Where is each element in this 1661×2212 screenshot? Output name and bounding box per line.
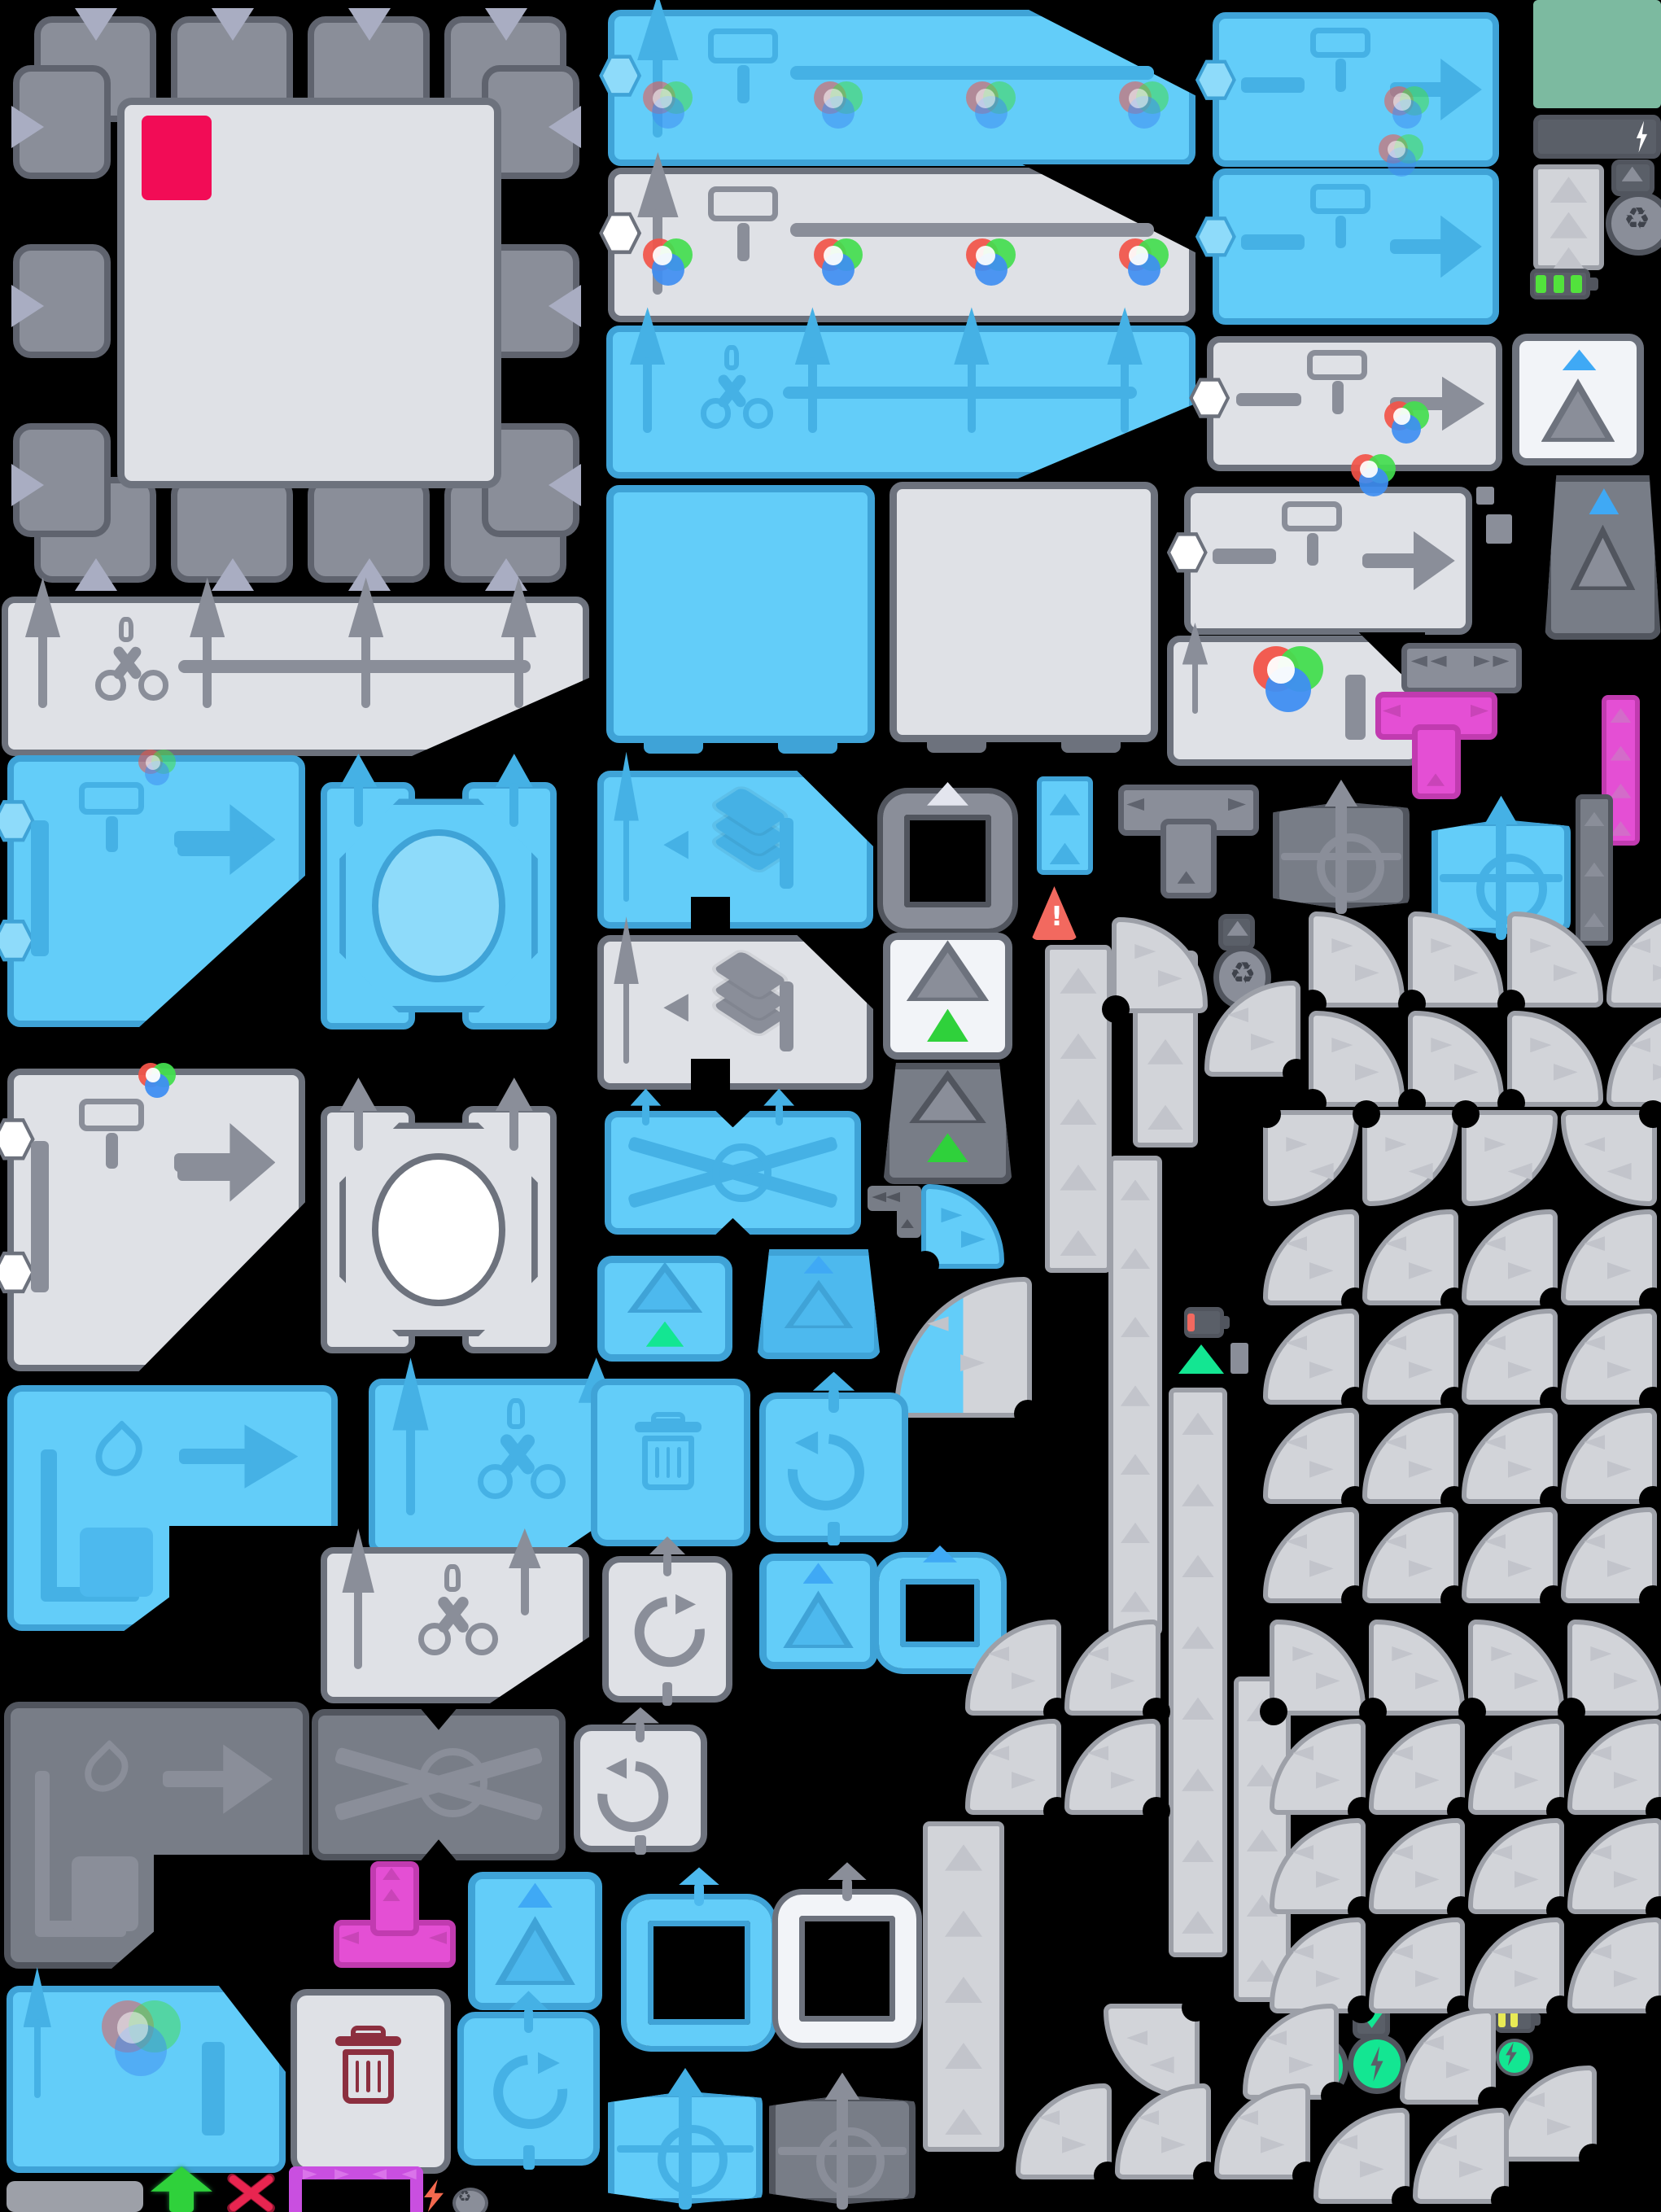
pipe-line [31, 820, 49, 956]
power-capacity-bar[interactable] [1533, 115, 1661, 159]
belt-curve-tl[interactable] [1263, 1507, 1359, 1603]
frame-body [627, 1899, 771, 2046]
scissors-icon [470, 1397, 562, 1488]
arrow-head [1414, 531, 1455, 591]
arrow-up-icon [190, 577, 225, 708]
magenta-tee-up[interactable] [334, 1861, 456, 1968]
curve-notch [1639, 1585, 1661, 1613]
frame-arrow [828, 1862, 867, 1901]
arrow-head [824, 2073, 859, 2101]
arrow-right-icon [1362, 531, 1454, 591]
core-ellipse [372, 829, 505, 982]
unlock-pad-white[interactable] [883, 933, 1012, 1060]
pipe-line [780, 981, 793, 1051]
notch-triangle [923, 1545, 957, 1563]
pin-bar [778, 2147, 907, 2154]
belt-curve-tr[interactable] [1369, 1620, 1465, 1716]
curve-body [1567, 1719, 1661, 1815]
deco-square-a[interactable] [1476, 487, 1494, 505]
arrow-up-icon [614, 752, 639, 902]
pipe-line [1213, 549, 1276, 563]
pin-stem [635, 1835, 645, 1856]
arrow-right-icon [163, 1744, 273, 1813]
belt-curve-tl[interactable] [1561, 1408, 1657, 1504]
recycle-small[interactable]: ♻ [452, 2188, 482, 2212]
scissors-icon [412, 1563, 493, 1644]
launcher-pad-white[interactable] [1512, 334, 1644, 466]
plate-body [606, 485, 875, 743]
plate-foot [778, 741, 837, 754]
belt-curve-tl[interactable] [1462, 1209, 1558, 1305]
painter-right-blue-1[interactable] [1213, 12, 1499, 167]
arrow-stem [509, 1107, 518, 1151]
roller-head [1307, 350, 1367, 380]
red-x[interactable] [221, 2173, 282, 2212]
stacker-gray[interactable] [597, 935, 873, 1090]
arrow-stem [1362, 553, 1418, 567]
belt-curve-tl[interactable] [1263, 1209, 1359, 1305]
belt-curve-tl[interactable] [1270, 1719, 1366, 1815]
arrow-up-icon [630, 307, 665, 432]
rgb-center [824, 89, 843, 108]
belt-curve-tl[interactable] [1362, 1408, 1458, 1504]
arrow-up-icon [813, 1372, 855, 1413]
cross-ring [418, 1748, 487, 1817]
arrow-stem [642, 1104, 649, 1126]
curve-notch [1353, 1100, 1380, 1128]
green-arrow-up[interactable] [151, 2166, 212, 2212]
arrow-stem [623, 811, 629, 902]
belt-curve-blue[interactable] [921, 1184, 1004, 1269]
arrow-up-icon [496, 1078, 533, 1151]
foot-block [80, 1528, 152, 1597]
dark-hopper-trapezoid[interactable] [1545, 475, 1661, 640]
warning-sign[interactable]: ! [1031, 886, 1077, 940]
trash-blue[interactable] [591, 1379, 750, 1546]
rgb-center [1388, 141, 1405, 159]
core-ellipse [372, 1153, 505, 1306]
color-square [1486, 514, 1512, 544]
scissor-ring [138, 670, 168, 700]
triangle-icon [630, 307, 665, 365]
l-cut [169, 1526, 341, 1634]
arrow-up-icon [509, 1991, 549, 2033]
splitter-bar-gray[interactable] [1401, 643, 1522, 693]
rotator-cw-blue[interactable] [457, 1998, 600, 2173]
pipe-line [178, 660, 531, 673]
arrow-stem [354, 783, 363, 827]
belt-curve-tr[interactable] [1309, 1011, 1405, 1107]
arrow-stem [163, 1771, 229, 1787]
foot-block [72, 1856, 139, 1931]
pipe-line [783, 387, 1136, 399]
pin-stem [662, 1682, 673, 1706]
pin-ring [1317, 833, 1384, 901]
belt-curve-tl[interactable] [1369, 1719, 1465, 1815]
platform-foundation[interactable] [11, 8, 581, 591]
arrow-up-icon [763, 1089, 794, 1126]
rotator-ccw-blue[interactable] [759, 1379, 908, 1549]
bar-body [1401, 643, 1522, 693]
belt-curve-tr[interactable] [1112, 917, 1208, 1013]
curve-notch [1321, 2082, 1348, 2109]
arrow-stem [828, 1388, 838, 1413]
blade-tip [119, 617, 133, 642]
medal-circle [1348, 2034, 1406, 2094]
trash-white[interactable] [291, 1989, 451, 2174]
tunnel-frame-gray[interactable] [883, 782, 1012, 929]
pin-pusher-gray[interactable] [769, 2087, 916, 2212]
arrow-up-icon [614, 916, 639, 1064]
painter-right-gray-1[interactable] [1207, 336, 1502, 471]
belt-curve-tl[interactable] [1462, 1507, 1558, 1603]
rotator-ccw-gray[interactable] [574, 1713, 707, 1858]
rotate-cw-icon [631, 1593, 698, 1660]
plate-foot [927, 739, 986, 753]
arrow-right-icon [1390, 216, 1482, 278]
trash-stripe [677, 1447, 680, 1479]
belt-curve-tl[interactable] [1462, 1408, 1558, 1504]
arrow-stem [636, 1721, 645, 1742]
belt-curve-tl[interactable] [1462, 1309, 1558, 1405]
crossover-blue[interactable] [605, 1111, 861, 1235]
battery-bar [1498, 2012, 1506, 2028]
battery-red[interactable] [1184, 1307, 1230, 1338]
gray-plate-square[interactable] [890, 482, 1158, 753]
hex-inner [1199, 63, 1232, 98]
arrow-up-icon [339, 754, 377, 827]
pin-pusher-dark[interactable] [1273, 794, 1410, 916]
arrow-up-icon [24, 1967, 51, 2098]
white-frame-arrow[interactable] [778, 1882, 916, 2043]
belt-curve-tl[interactable] [1468, 1719, 1564, 1815]
arrow-stem [521, 1563, 529, 1616]
arrow-stem [842, 1878, 851, 1901]
triangle-icon [24, 1967, 51, 2027]
rotator-cw-gray[interactable] [602, 1543, 732, 1709]
quad-painter-gray[interactable] [608, 168, 1195, 322]
pin-stem [828, 1522, 840, 1545]
hex-inner [0, 802, 31, 839]
octagon-processor-blue[interactable] [321, 759, 557, 1041]
tee-balancer-gray[interactable] [1118, 785, 1259, 898]
belt-curve-tl[interactable] [1064, 1620, 1161, 1716]
triangle-icon [501, 577, 536, 637]
pin-stem [523, 2145, 535, 2170]
hex-inner [0, 1254, 31, 1291]
belt-curve-tl[interactable] [1468, 1818, 1564, 1914]
trash-stripe [356, 2061, 359, 2092]
arrow-head [1440, 59, 1482, 120]
roller-handle [737, 223, 750, 261]
belt-curve-tl[interactable] [1016, 2083, 1112, 2179]
belt-curve-tl[interactable] [1369, 1917, 1465, 2013]
belt-curve-tl[interactable] [965, 1719, 1061, 1815]
curve-notch [1143, 1797, 1170, 1825]
painter-left-blue[interactable] [7, 755, 305, 1027]
recycle-medal-top[interactable]: ♻ [1605, 160, 1661, 247]
curve-body [1507, 911, 1603, 1008]
belt-curve-tl[interactable] [1567, 1719, 1661, 1815]
curve-notch [1491, 2186, 1519, 2212]
blue-frame-arrow[interactable] [627, 1886, 771, 2046]
cutter-quad-blue[interactable] [606, 326, 1195, 479]
arrow-stem [524, 2008, 534, 2033]
belt-curve-br[interactable] [1362, 1110, 1458, 1206]
arrow-stem [38, 630, 46, 708]
pin-pusher-blue-2[interactable] [608, 2083, 763, 2212]
pipe-line [1236, 393, 1301, 407]
green-material-square[interactable] [1533, 0, 1661, 108]
battery-nub [1535, 2013, 1541, 2026]
belt-curve-tl[interactable] [1270, 1917, 1366, 2013]
scissor-ring [701, 398, 731, 428]
belt-curve-tl[interactable] [1501, 2066, 1597, 2162]
arrow-up-icon [25, 577, 60, 708]
roller-handle [1335, 59, 1346, 92]
pad-blue-triangles-c[interactable] [468, 1872, 602, 2010]
curve-body [1270, 1620, 1366, 1716]
roller-handle [106, 1133, 117, 1169]
pad-blue-triangles-b[interactable] [759, 1554, 877, 1669]
belt-curve-tr[interactable] [1507, 911, 1603, 1008]
arrow-bar [177, 837, 255, 855]
arrow-stem [776, 1104, 783, 1126]
arrow-stem [623, 975, 629, 1063]
scissor-ring [531, 1464, 566, 1499]
triangle-icon [342, 1528, 374, 1593]
trash-icon [632, 1412, 704, 1494]
sprite-atlas: ♻!♻♻ [0, 0, 1661, 2212]
roller-handle [1307, 533, 1318, 566]
belt-curve-tr[interactable] [1567, 1620, 1661, 1716]
rgb-center [1267, 656, 1295, 684]
belt-curve-tl[interactable] [1369, 1818, 1465, 1914]
belt-curve-tl[interactable] [965, 1620, 1061, 1716]
belt-curve-tl[interactable] [1362, 1507, 1458, 1603]
strip-b[interactable] [1045, 945, 1112, 1273]
belt-curve-half[interactable] [894, 1277, 1032, 1418]
octagon-processor-gray[interactable] [321, 1083, 557, 1365]
pipe-line [1241, 234, 1304, 250]
pipe-line [780, 818, 793, 889]
frame-body [883, 793, 1012, 929]
triangle-icon [392, 1357, 428, 1430]
belt-curve-tr[interactable] [1270, 1620, 1366, 1716]
painter-right-blue-2[interactable] [1213, 168, 1499, 325]
arrow-head [223, 1744, 273, 1813]
octagon-core [339, 1122, 538, 1336]
painter-left-gray[interactable] [7, 1069, 305, 1371]
belt-curve-tl[interactable] [1115, 2083, 1211, 2179]
layers-icon [713, 793, 786, 866]
curve-body [1606, 1011, 1661, 1107]
belt-curve-tl[interactable] [1561, 1507, 1657, 1603]
pad-blue-triangles-a[interactable] [597, 1256, 732, 1362]
green-triangle[interactable] [1178, 1344, 1224, 1374]
frame-body [778, 1895, 916, 2043]
belt-curve-tl[interactable] [1362, 1209, 1458, 1305]
arrow-up-icon [392, 1357, 428, 1515]
blue-plate-square[interactable] [606, 485, 875, 754]
belt-curve-tl[interactable] [1413, 2108, 1509, 2204]
belt-curve-tl[interactable] [1263, 1309, 1359, 1405]
belt-body [1169, 1388, 1227, 1957]
belt-curve-tr[interactable] [1408, 911, 1504, 1008]
arrow-head [1484, 796, 1518, 824]
belt-curve-tr[interactable] [1507, 1011, 1603, 1107]
cutter-half-gray[interactable] [321, 1547, 589, 1703]
belt-strip-top[interactable] [1533, 164, 1604, 270]
belt-curve-bl[interactable] [1561, 1110, 1657, 1206]
battery-nub [1590, 278, 1598, 291]
droplet-icon [94, 1419, 146, 1483]
belt-curve-tl[interactable] [1567, 1917, 1661, 2013]
trash-body [343, 2049, 395, 2104]
rgb-center [1393, 93, 1411, 111]
recycle-symbol: ♻ [1624, 204, 1650, 234]
curve-body [1369, 1620, 1465, 1716]
notch-cut [691, 897, 729, 932]
curve-body [1408, 1011, 1504, 1107]
belt-strip-wide[interactable] [923, 1821, 1004, 2152]
roller-head [708, 186, 778, 221]
belt-curve-tl[interactable] [1561, 1309, 1657, 1405]
rgb-center [1360, 461, 1378, 479]
pin-bar [617, 2145, 753, 2153]
dark-hopper-square[interactable] [883, 1063, 1012, 1184]
stacker-blue[interactable] [597, 771, 873, 929]
triangle-icon [1107, 307, 1142, 365]
blade-tip [507, 1398, 525, 1429]
magenta-bracket[interactable] [289, 2166, 423, 2212]
arrow-stem [1390, 239, 1445, 254]
arrow-stem [1192, 659, 1199, 714]
warning-exclamation: ! [1051, 903, 1063, 929]
belt-curve-tl[interactable] [1263, 1408, 1359, 1504]
curve-body [1309, 1011, 1405, 1107]
scissor-ring [478, 1464, 513, 1499]
magenta-tee[interactable] [1375, 692, 1497, 799]
scissors-icon [90, 616, 163, 689]
curve-body [1263, 1110, 1359, 1206]
belt-curve-tl[interactable] [1204, 981, 1300, 1077]
orange-bolt[interactable] [417, 2179, 450, 2212]
belt-curve-br[interactable] [1462, 1110, 1558, 1206]
triangle-icon [1182, 623, 1208, 665]
arrow-up-icon [649, 1537, 686, 1576]
belt-curve-tl[interactable] [1567, 1818, 1661, 1914]
pipe-line [35, 1771, 50, 1931]
arrow-head [1325, 780, 1357, 807]
cross-ring [712, 1143, 771, 1203]
hex-inner [603, 58, 638, 94]
arrow-stem [663, 1552, 672, 1576]
trash-lid [335, 2036, 402, 2046]
pin-bar [1440, 874, 1562, 882]
pin-ring [816, 2127, 885, 2196]
belt-curve-tl[interactable] [1606, 1011, 1661, 1107]
trash-stripe [655, 1447, 658, 1479]
belt-curve-tr[interactable] [1468, 1620, 1564, 1716]
painter-right-gray-2[interactable] [1184, 487, 1472, 635]
belt-curve-tl[interactable] [1270, 1818, 1366, 1914]
strip-d[interactable] [1108, 1156, 1162, 1636]
curve-notch [1014, 1400, 1042, 1427]
curve-notch [1102, 995, 1130, 1023]
pipe-line [202, 2042, 224, 2135]
color-square [1476, 487, 1494, 505]
scissor-ring [743, 398, 773, 428]
arrow-up-icon [339, 1078, 377, 1151]
roller-head [708, 28, 778, 63]
rotate-cw-icon [489, 2051, 563, 2125]
belt-curve-br[interactable] [1263, 1110, 1359, 1206]
triangle-icon [25, 577, 60, 637]
mini-corner-dark[interactable] [868, 1186, 921, 1238]
belt-curve-tl[interactable] [1400, 2009, 1496, 2105]
arrow-up-icon [342, 1528, 374, 1669]
lightning-icon [417, 2179, 450, 2212]
roller-handle [1332, 381, 1343, 414]
belt-curve-tl[interactable] [1362, 1309, 1458, 1405]
crossover-dark[interactable] [312, 1709, 566, 1860]
strip-e[interactable] [1169, 1388, 1227, 1957]
belt-curve-tl[interactable] [1314, 2108, 1410, 2204]
triangle-icon [151, 2166, 212, 2192]
belt-curve-tl[interactable] [1214, 2083, 1310, 2179]
belt-curve-tr[interactable] [1408, 1011, 1504, 1107]
quad-painter-blue[interactable] [608, 10, 1195, 166]
octagon-core [339, 798, 538, 1012]
belt-curve-tl[interactable] [1468, 1917, 1564, 2013]
deco-square-c[interactable] [1230, 1343, 1248, 1374]
hex-inner [0, 1121, 31, 1157]
color-square [7, 2181, 143, 2212]
cutter-quad-gray[interactable] [2, 597, 589, 756]
paint-pipe-blue[interactable] [7, 1385, 338, 1631]
roller-head [1310, 28, 1370, 58]
battery-bar [1571, 275, 1581, 294]
arrow-up-icon [501, 577, 536, 708]
belt-curve-tl[interactable] [1561, 1209, 1657, 1305]
belt-curve-tr[interactable] [1309, 911, 1405, 1008]
hopper-blue-trapezoid[interactable] [757, 1249, 881, 1359]
pipe-line [31, 1141, 49, 1292]
color-wheel-blue[interactable] [7, 1986, 286, 2173]
arrow-up-icon [348, 577, 383, 708]
pin-bar [1281, 853, 1401, 860]
triangle-icon [795, 307, 830, 365]
belt-curve-tl[interactable] [1606, 911, 1661, 1008]
curve-notch [1253, 1100, 1281, 1128]
deco-square-b[interactable] [1486, 514, 1512, 544]
color-square [1230, 1343, 1248, 1374]
belt-curve-tl[interactable] [1064, 1719, 1161, 1815]
pipe-line [790, 66, 1155, 80]
arrow-stem [34, 2019, 41, 2098]
battery-bar [1510, 2012, 1518, 2028]
curve-body [1362, 1110, 1458, 1206]
gray-slab[interactable] [7, 2181, 143, 2212]
arrow-shape [151, 2166, 212, 2212]
curve-notch [911, 1251, 939, 1279]
battery-green[interactable] [1530, 269, 1598, 299]
scissor-ring [418, 1623, 451, 1655]
medal-circle: ♻ [1606, 191, 1661, 256]
paint-pipe-gray[interactable] [4, 1702, 309, 1969]
belt-strip-blue[interactable] [1037, 776, 1093, 875]
